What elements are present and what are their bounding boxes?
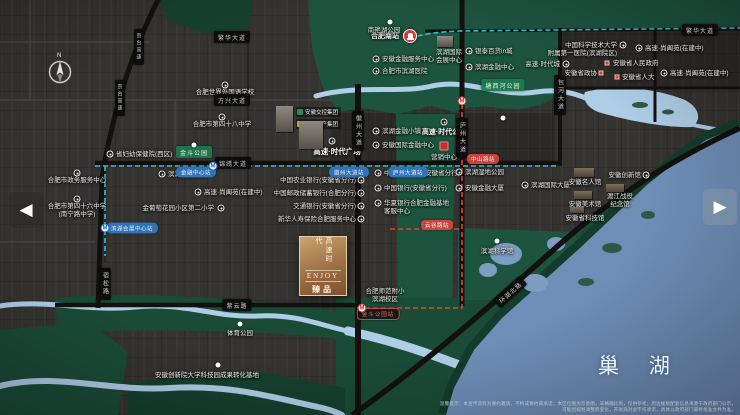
map-label: 安徽创新馆 [609,172,642,180]
badge-logo-icon [297,109,303,115]
metro-station-pill: 滨湖会展中心站 [106,223,158,234]
chevron-left-icon: ◀ [19,200,32,220]
road-name-pill: 京台高速 [134,29,144,65]
map-label: 合肥市第四十八中学 [193,121,252,129]
road-name-pill: 紫云路 [222,299,251,311]
poi-dot-icon [358,190,365,197]
map-label: 合肥师范附小 滨湖校区 [366,288,405,304]
map-label: 安徽金融服务中心 [382,56,434,64]
map-label: 高速·尚阖苑(在建中) [645,45,704,53]
map-label: 省妇幼保健院(西区) [116,151,172,159]
poi-dot-icon [358,203,365,210]
poi-dot-icon [358,216,365,223]
poi-dot-icon [195,189,202,196]
map-label: 新华人寿保险合肥服务中心 [278,216,356,224]
poi-dot-icon [643,172,650,179]
map-label: 滨湖湿地公园 [465,169,504,177]
map-label: 体育公园 [227,330,253,338]
prev-map-button[interactable]: ◀ [9,192,43,228]
poi-dot-icon [456,185,463,192]
map-label: 安徽省人民政府 [613,60,659,68]
sales-center-icon [440,142,449,151]
map-label: 合肥市滨湖医院 [382,68,428,76]
poi-dot-icon [373,142,380,149]
poi-dot-icon [373,56,380,63]
metro-logo-icon: M [101,224,110,233]
disclaimer-line: 可能因规划调整而变化，开发商对此不作承诺，具体以政府部门最终批准文件为准。 [562,407,736,413]
map-label: 华夏银行合肥金融基地 客服中心 [384,200,449,216]
metro-logo-icon: M [458,97,467,106]
map-label: 南艳湖公园 [368,27,401,35]
park-dot-icon [192,143,197,148]
poi-dot-icon [329,138,336,145]
poi-dot-icon [636,45,643,52]
map-label: 滨湖国际 会展中心 [436,49,462,65]
park-dot-icon [238,322,243,327]
building-illustration [606,184,624,192]
poi-dot-icon [522,182,529,189]
map-label: 高速·尚阖苑(在建中) [670,70,729,78]
map-label: 滨湖金融小镇 [382,128,421,136]
road-name-pill: 徽州大道 [352,111,364,151]
poi-dot-icon [375,185,382,192]
park-dot-icon [388,20,393,25]
poi-dot-icon [373,68,380,75]
map-label: 安徽名人馆 [569,179,602,187]
road-name-pill: 繁华大道 [214,31,250,43]
map-label: 安徽国际金融中心 [382,142,434,150]
metro-logo-icon: M [358,304,367,313]
poi-dot-icon [159,171,166,178]
map-label: 合肥市政务服务中心 [48,177,107,185]
poi-dot-icon [373,128,380,135]
road-name-pill: 宿松路 [99,268,111,300]
map-label: 中国农业银行(安徽省分行) [280,177,356,185]
park-name-pill: 塘西河公园 [481,79,524,91]
government-dot-icon [605,61,610,66]
poi-dot-icon [441,119,448,126]
poi-dot-icon [107,151,114,158]
project-logo-sub-text: 臻品 [312,284,334,295]
poi-dot-icon [74,196,81,203]
road-name-pill: 繁华大道 [682,24,718,36]
compass-north-label: N [57,53,61,59]
map-label: 中国银行(安徽省分行) [384,185,447,193]
poi-dot-icon [375,200,382,207]
poi-dot-icon [620,42,627,49]
poi-dot-icon [466,48,473,55]
map-label: 营销中心 [431,154,457,162]
project-logo: 高速时代 ENJOY 臻品 [299,236,347,296]
government-dot-icon [615,75,620,80]
poi-dot-icon [563,61,570,68]
project-logo-vertical-text: 高速时代 [313,237,333,268]
developer-badge: 安徽交控集团 [296,107,341,117]
metro-logo-icon: M [209,162,218,171]
lake-name-label: 巢 湖 [598,350,682,380]
map-label: 滨湖科学馆 [481,248,514,256]
map-label: 安徽省政协 [565,70,598,78]
road-name-pill: 方兴大道 [214,94,250,106]
poi-dot-icon [661,70,668,77]
park-dot-icon [501,116,506,121]
building-illustration [574,191,592,199]
map-label: 银泰百货in城 [475,48,513,56]
park-dot-icon [216,363,221,368]
metro-station-pill: 云谷路站 [421,220,453,230]
metro-station-pill: 中山路站 [467,154,499,164]
map-label: 安徽创新院大学科技园成果转化基地 [155,372,259,380]
poi-dot-icon [222,82,229,89]
project-logo-en-text: ENJOY [305,270,341,282]
metro-station-pill: 徽州大道站 [329,167,369,178]
road-name-pill: 京台高速 [115,80,125,116]
building-illustration [570,207,584,213]
map-label: 安徽金融大厦 [465,185,504,193]
map-label: 滨湖金融中心 [475,64,514,72]
map-canvas[interactable]: N 安徽交控集团高速地产集团 高速时代 ENJOY 臻品 ◀ ▶ 巢 湖 温馨提… [0,0,740,415]
building-illustration [574,168,594,177]
badge-label: 安徽交控集团 [305,108,338,116]
poi-dot-icon [375,170,382,177]
map-label: 金葡萄花园小区第二小学 [143,205,215,213]
next-map-button[interactable]: ▶ [703,189,737,225]
poi-dot-icon [456,169,463,176]
road-name-pill: 庐州大道 [456,118,468,158]
park-dot-icon [495,239,500,244]
map-label: 中国邮政储蓄银行(合肥分行) [274,190,356,198]
government-dot-icon [599,71,604,76]
poi-dot-icon [74,170,81,177]
map-label: 合肥市第四十六中学 (南宁路中学) [48,203,107,219]
map-label: 安徽省科技馆 [566,215,605,223]
park-name-pill: 金斗公园 [176,146,212,158]
poi-dot-icon [218,205,225,212]
chevron-right-icon: ▶ [713,197,726,217]
map-label: 高速·时代城 [525,61,560,69]
map-label: 高速·尚阖苑(在建中) [204,189,263,197]
building-illustration [299,121,323,149]
building-illustration [276,106,293,132]
map-label: 滨湖国际大厦 [531,182,570,190]
map-label: 中国科学技术大学 附属第一医院(滨湖院区) [548,42,617,58]
railway-station-icon [403,29,417,43]
poi-dot-icon [466,64,473,71]
road-name-pill: 环湖北路 [493,275,528,308]
map-label: 交通银行(安徽省分行) [293,203,356,211]
poi-dot-icon [358,177,365,184]
building-illustration [437,36,453,47]
poi-dot-icon [219,114,226,121]
map-label: 安徽省人大 [622,74,655,82]
metro-station-pill: 庐州大道站 [388,167,428,178]
map-label: 渡江战役 纪念馆 [607,193,633,209]
road-name-pill: 包河大道 [554,75,566,115]
road-name-pill: 锦绣大道 [215,157,251,169]
